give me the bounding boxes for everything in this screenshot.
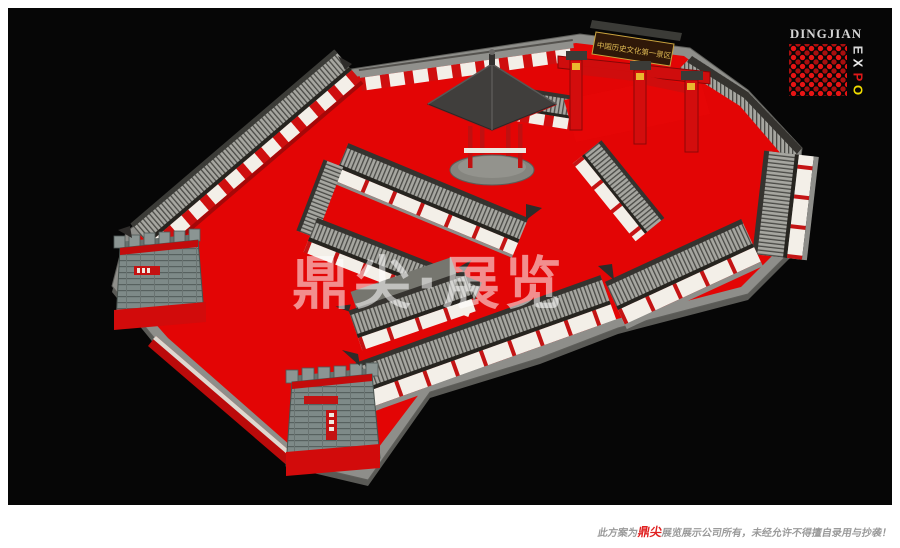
gate-pillar: [685, 80, 698, 152]
watchtower-1: [114, 229, 206, 330]
presentation-board: 中国历史文化第一景区: [0, 0, 900, 548]
logo-dots-grid: [789, 44, 847, 96]
watchtower-2: [286, 363, 380, 476]
gate-pillar: [634, 70, 646, 144]
logo-expo-letter: E: [851, 44, 863, 57]
copyright-suffix: 展览展示公司所有，未经允许不得擅自录用与抄袭！: [661, 528, 893, 539]
watermark: 鼎尖·展览: [292, 238, 567, 320]
logo-expo-text: E X P O: [851, 44, 864, 96]
logo-brand-text: DINGJIAN: [784, 26, 868, 42]
copyright-prefix: 此方案为: [597, 528, 639, 539]
pavilion-finial: [489, 49, 495, 55]
logo-expo-letter: O: [851, 83, 863, 96]
logo-expo-letter: X: [851, 57, 863, 70]
dingjian-logo: DINGJIAN E X P O: [784, 26, 868, 96]
gate-pillar: [570, 60, 582, 130]
pavilion-railing: [464, 148, 526, 153]
tower-banner: [304, 396, 338, 404]
copyright-brand: 鼎尖: [637, 525, 663, 539]
render-stage: 中国历史文化第一景区: [8, 8, 892, 505]
logo-expo-letter: P: [851, 70, 863, 83]
copyright-notice: 此方案为鼎尖展览展示公司所有，未经允许不得擅自录用与抄袭！: [596, 523, 893, 540]
